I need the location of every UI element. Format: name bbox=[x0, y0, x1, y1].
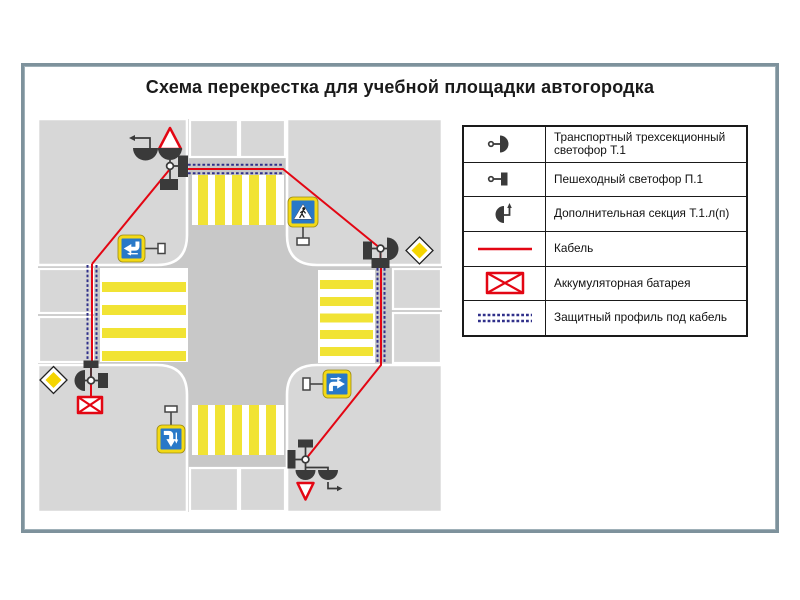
intersection-diagram bbox=[38, 119, 442, 512]
legend-label: Пешеходный светофор П.1 bbox=[546, 163, 746, 197]
crosswalk-top bbox=[192, 175, 284, 225]
legend-row-protective-profile: Защитный профиль под кабель bbox=[464, 300, 746, 335]
legend-row-transport-light: Транспортный трехсекционный светофор Т.1 bbox=[464, 127, 746, 162]
transport-light-icon bbox=[464, 127, 546, 162]
legend-table: Транспортный трехсекционный светофор Т.1… bbox=[462, 125, 748, 337]
legend-label: Транспортный трехсекционный светофор Т.1 bbox=[546, 127, 746, 162]
pedestrian-signal bbox=[160, 179, 178, 190]
sign-plate bbox=[297, 238, 309, 245]
sign-plate bbox=[165, 406, 177, 412]
road-median-bottom bbox=[190, 468, 285, 511]
cable-line-icon bbox=[464, 232, 546, 266]
pedestrian-signal bbox=[372, 258, 390, 268]
pedestrian-signal bbox=[298, 440, 313, 448]
legend-label: Аккумуляторная батарея bbox=[546, 267, 746, 301]
battery-symbol bbox=[78, 397, 102, 413]
pole-hub bbox=[88, 377, 95, 384]
legend-row-battery: Аккумуляторная батарея bbox=[464, 266, 746, 301]
legend-label: Кабель bbox=[546, 232, 746, 266]
crosswalk-bottom bbox=[192, 405, 284, 455]
crosswalk-right bbox=[318, 270, 375, 363]
content-frame: Схема перекрестка для учебной площадки а… bbox=[21, 63, 779, 533]
legend-row-additional-section: Дополнительная секция Т.1.л(п) bbox=[464, 196, 746, 231]
road-median-right bbox=[393, 269, 441, 363]
page-title: Схема перекрестка для учебной площадки а… bbox=[24, 77, 776, 98]
pole-hub bbox=[302, 456, 309, 463]
sign-plate bbox=[303, 378, 310, 390]
pole-hub bbox=[377, 245, 384, 252]
road-median-top bbox=[190, 120, 285, 157]
protective-profile-icon bbox=[464, 301, 546, 335]
sign-plate bbox=[158, 244, 165, 254]
pedestrian-light-icon bbox=[464, 163, 546, 197]
mounting-plate bbox=[363, 242, 372, 260]
mounting-plate bbox=[178, 156, 188, 178]
pedestrian-crossing-sign bbox=[288, 197, 318, 227]
battery-icon bbox=[464, 267, 546, 301]
additional-section-icon bbox=[464, 197, 546, 231]
mounting-plate bbox=[288, 450, 296, 469]
legend-row-pedestrian-light: Пешеходный светофор П.1 bbox=[464, 162, 746, 197]
mounting-plate bbox=[84, 361, 99, 369]
legend-label: Защитный профиль под кабель bbox=[546, 301, 746, 335]
pedestrian-signal bbox=[98, 373, 108, 388]
legend-label: Дополнительная секция Т.1.л(п) bbox=[546, 197, 746, 231]
legend-row-cable: Кабель bbox=[464, 231, 746, 266]
crosswalk-left bbox=[100, 268, 188, 362]
pole-hub bbox=[167, 163, 174, 170]
